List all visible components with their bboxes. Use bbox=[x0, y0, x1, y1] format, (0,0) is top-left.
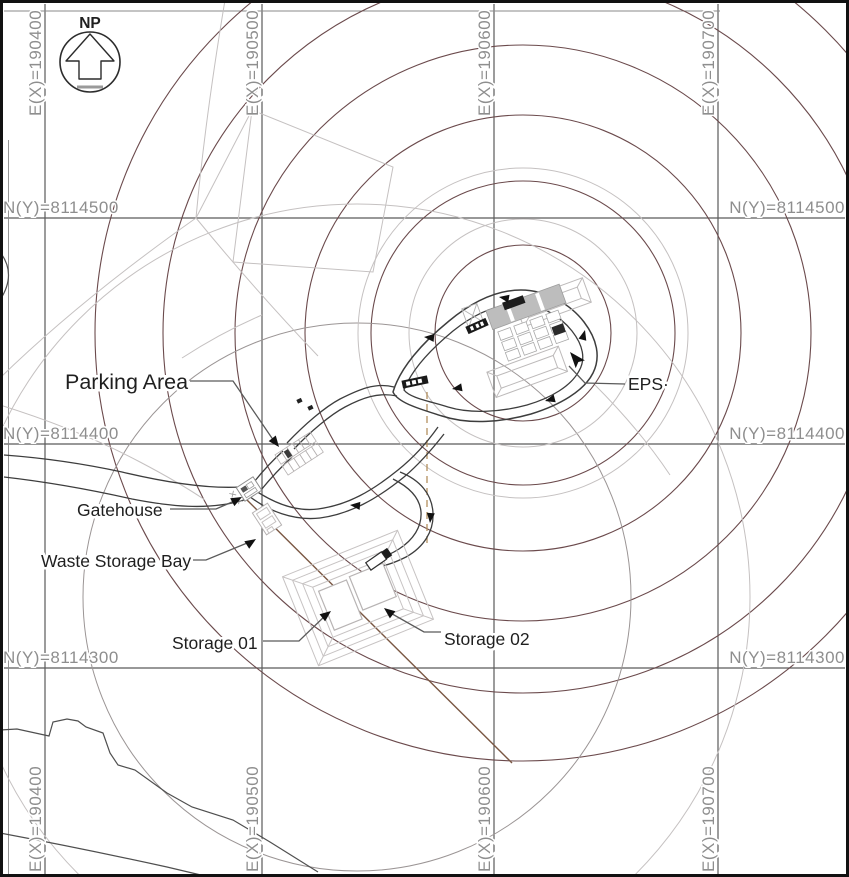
leader-arrow-icon bbox=[244, 535, 258, 549]
survey-line bbox=[182, 315, 262, 358]
survey-line bbox=[196, 110, 252, 218]
radius-circle bbox=[235, 45, 811, 621]
survey-line bbox=[0, 405, 205, 500]
direction-arrow-icon bbox=[579, 329, 589, 341]
radius-circle bbox=[409, 219, 637, 447]
easting-label-bottom: E(X)=190600 bbox=[475, 766, 494, 872]
storage-access-road bbox=[249, 434, 444, 519]
leader-arrow-icon bbox=[381, 604, 395, 618]
label-parking-area: Parking Area bbox=[65, 370, 188, 394]
leader-arrow-icon bbox=[269, 436, 283, 450]
survey-parcel-outline bbox=[233, 110, 393, 272]
north-pointer-label: NP bbox=[79, 15, 101, 32]
north-arrow-icon bbox=[66, 34, 114, 79]
gatehouse-parking-road bbox=[254, 451, 283, 482]
label-storage-02: Storage 02 bbox=[444, 629, 530, 649]
northing-label-left: N(Y)=8114300 bbox=[3, 648, 119, 667]
survey-line bbox=[196, 0, 225, 218]
direction-arrow-icon bbox=[498, 293, 509, 303]
parking-area-stalls bbox=[275, 432, 323, 475]
label-eps: EPS· bbox=[628, 374, 669, 394]
leader-storage02 bbox=[387, 611, 441, 632]
small-vehicles bbox=[296, 398, 313, 411]
site-plan-drawing: NP E(X)=190400 E(X)=190500 E(X)=190600 E… bbox=[0, 0, 849, 877]
northing-label-right: N(Y)=8114300 bbox=[729, 648, 845, 667]
easting-label-top: E(X)=190600 bbox=[475, 10, 494, 116]
vehicle-bus bbox=[401, 375, 428, 388]
label-waste-storage-bay: Waste Storage Bay bbox=[41, 551, 191, 571]
easting-label-bottom: E(X)=190500 bbox=[243, 766, 262, 872]
northing-label-left: N(Y)=8114400 bbox=[3, 424, 119, 443]
contour bbox=[0, 719, 318, 872]
leader-waste-bay bbox=[193, 541, 252, 560]
easting-label-top: E(X)=190700 bbox=[699, 10, 718, 116]
northing-label-left: N(Y)=8114500 bbox=[3, 198, 119, 217]
site-plan-svg: NP E(X)=190400 E(X)=190500 E(X)=190600 E… bbox=[0, 0, 849, 877]
eps-facility bbox=[462, 267, 611, 399]
survey-line bbox=[0, 218, 196, 378]
easting-label-bottom: E(X)=190700 bbox=[699, 766, 718, 872]
survey-line bbox=[595, 385, 670, 475]
drawing-border bbox=[2, 2, 848, 876]
northing-label-right: N(Y)=8114400 bbox=[729, 424, 845, 443]
leader-lines bbox=[170, 366, 625, 641]
leader-storage01 bbox=[263, 613, 328, 641]
leader-parking bbox=[190, 381, 276, 444]
parking-loop-road bbox=[287, 385, 394, 443]
northing-label-right: N(Y)=8114500 bbox=[729, 198, 845, 217]
label-gatehouse: Gatehouse bbox=[77, 500, 163, 520]
easting-label-top: E(X)=190400 bbox=[26, 10, 45, 116]
radius-circle bbox=[305, 115, 741, 551]
north-pointer: NP bbox=[60, 15, 120, 92]
coordinate-grid bbox=[4, 4, 845, 874]
label-storage-01: Storage 01 bbox=[172, 633, 258, 653]
easting-label-top: E(X)=190500 bbox=[243, 10, 262, 116]
radius-circle bbox=[0, 204, 750, 877]
survey-line bbox=[196, 218, 318, 356]
easting-label-bottom: E(X)=190400 bbox=[26, 766, 45, 872]
storage-02-pit bbox=[349, 563, 396, 610]
radius-circle bbox=[371, 181, 675, 485]
radius-circles-light bbox=[0, 168, 750, 877]
